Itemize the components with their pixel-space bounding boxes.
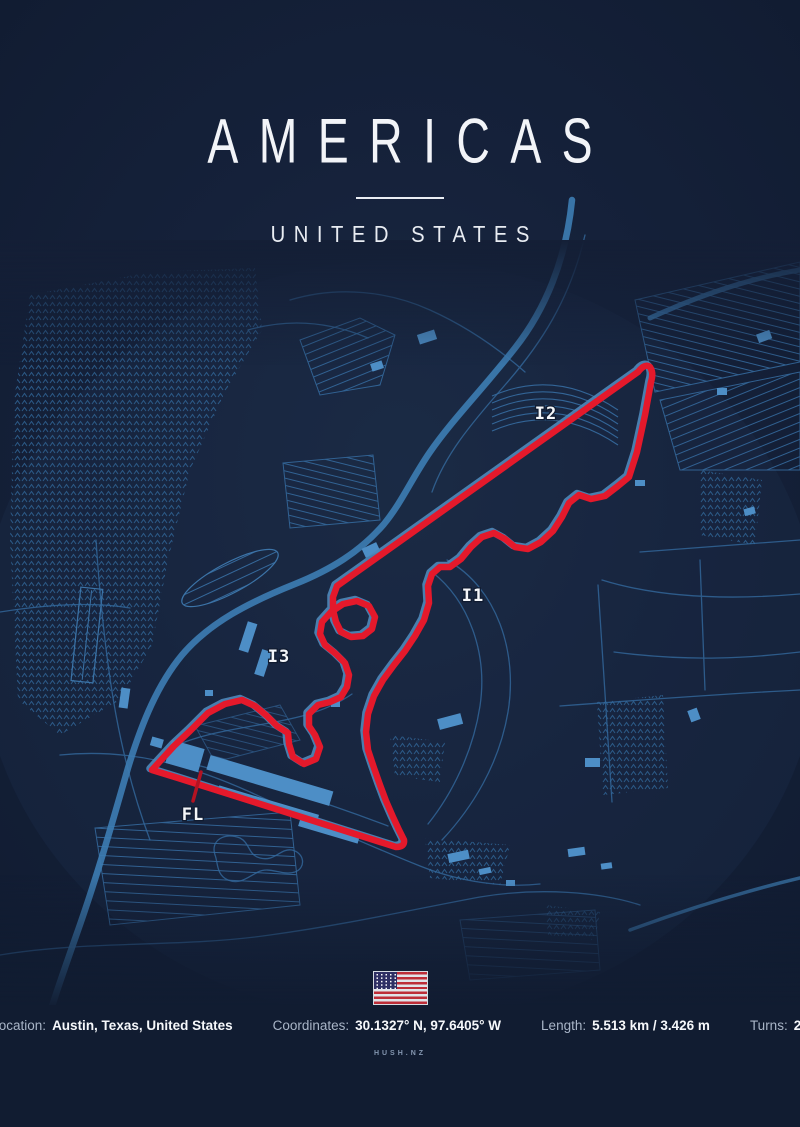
length-value: 5.513 km / 3.426 m bbox=[592, 1018, 710, 1033]
sector-marker-i1: I1 bbox=[462, 586, 484, 606]
map-top-fade bbox=[0, 240, 800, 365]
poster-root: I2 I1 I3 FL AMERICAS UNITED STATES Locat… bbox=[0, 0, 800, 1127]
united-states-flag bbox=[373, 971, 428, 1005]
title-divider bbox=[356, 197, 444, 199]
sector-marker-i2: I2 bbox=[535, 404, 557, 424]
page-subtitle: UNITED STATES bbox=[48, 221, 752, 248]
location-value: Austin, Texas, United States bbox=[52, 1018, 233, 1033]
coordinates-label: Coordinates: bbox=[273, 1018, 350, 1033]
turns-label: Turns: bbox=[750, 1018, 788, 1033]
coordinates-item: Coordinates: 30.1327° N, 97.6405° W bbox=[273, 1018, 501, 1033]
turns-value: 20 bbox=[794, 1018, 800, 1033]
length-item: Length: 5.513 km / 3.426 m bbox=[541, 1018, 710, 1033]
coordinates-value: 30.1327° N, 97.6405° W bbox=[355, 1018, 501, 1033]
info-row: Location: Austin, Texas, United States C… bbox=[0, 1018, 800, 1033]
sector-marker-i3: I3 bbox=[268, 647, 290, 667]
location-label: Location: bbox=[0, 1018, 46, 1033]
header: AMERICAS UNITED STATES bbox=[0, 0, 800, 248]
brand-text: HUSH.NZ bbox=[0, 1050, 800, 1057]
page-title: AMERICAS bbox=[80, 105, 720, 177]
flag-canton-stars bbox=[374, 972, 397, 989]
finish-line-marker: FL bbox=[182, 805, 204, 825]
location-item: Location: Austin, Texas, United States bbox=[0, 1018, 233, 1033]
turns-item: Turns: 20 bbox=[750, 1018, 800, 1033]
length-label: Length: bbox=[541, 1018, 586, 1033]
